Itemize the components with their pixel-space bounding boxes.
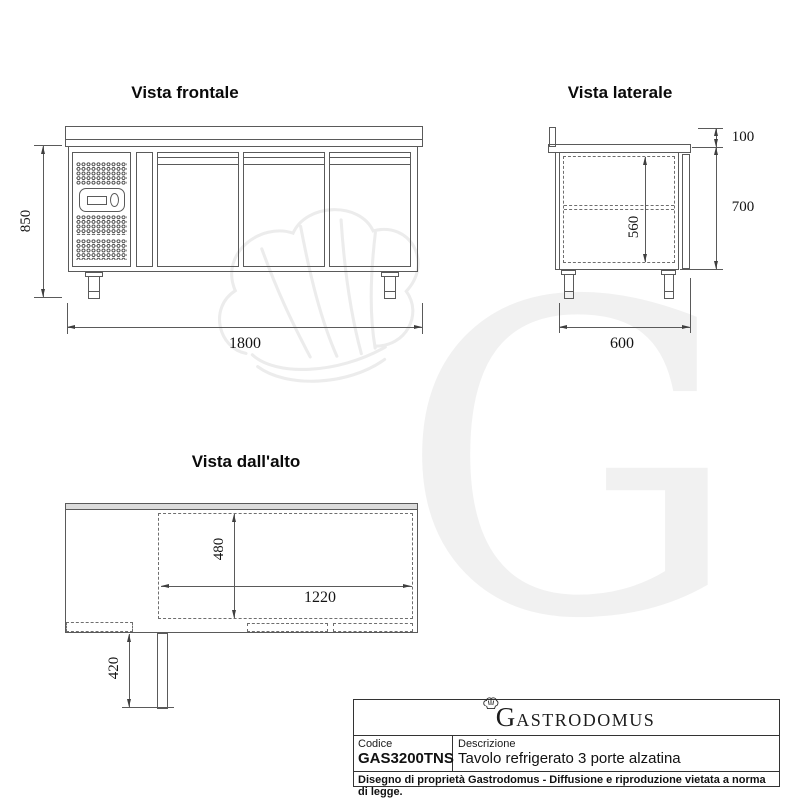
descrizione-value: Tavolo refrigerato 3 porte alzatina [458, 750, 681, 767]
dim-arrow [127, 634, 131, 642]
foot-leg [384, 276, 396, 299]
door-1 [157, 152, 239, 267]
side-view-title: Vista laterale [530, 83, 710, 103]
door-top-rail [158, 164, 238, 165]
technical-drawing-sheet: G Vista frontale 850 [0, 0, 800, 800]
front-worktop [65, 126, 423, 147]
side-backsplash-dim: 100 [725, 129, 761, 145]
dim-arrow [67, 325, 75, 329]
dim-arrow [714, 139, 718, 147]
door-top-rail [330, 157, 410, 158]
foot-adjuster-line [665, 291, 673, 292]
dim-arrow [559, 325, 567, 329]
dim-arrow [41, 146, 45, 154]
top-compressor-dashed [66, 622, 133, 632]
filler-panel [136, 152, 153, 267]
door-3 [329, 152, 411, 267]
dim-line [234, 514, 235, 618]
door-top-rail [244, 157, 324, 158]
foot-leg [88, 276, 100, 299]
title-block-divider [353, 735, 780, 736]
shelf-dashed-line [564, 209, 674, 210]
title-block-footer: Disegno di proprietà Gastrodomus - Diffu… [358, 774, 778, 798]
front-worktop-edge-line [66, 139, 422, 140]
extension-line [422, 303, 423, 334]
drawing-layer: Vista frontale 850 1800 [0, 0, 800, 800]
top-interior-dashed [158, 513, 413, 619]
top-view-title: Vista dall'alto [156, 452, 336, 472]
dim-arrow [403, 584, 411, 588]
tick-line [34, 145, 62, 146]
top-interior-width-dim: 1220 [290, 590, 350, 606]
door-top-rail [158, 157, 238, 158]
dim-arrow [161, 584, 169, 588]
title-block-divider [353, 771, 780, 772]
front-height-dim: 850 [18, 201, 34, 241]
foot-leg [564, 274, 574, 299]
front-view-title: Vista frontale [95, 83, 275, 103]
dim-line [43, 146, 44, 297]
control-knob [110, 193, 119, 207]
door-top-rail [244, 164, 324, 165]
top-interior-depth-dim: 480 [211, 529, 227, 569]
dim-arrow [232, 514, 236, 522]
dim-arrow [127, 699, 131, 707]
side-depth-dim: 600 [592, 336, 652, 352]
dim-line [716, 147, 717, 269]
side-height-dim: 700 [725, 199, 761, 215]
ventilation-grille-top [76, 162, 127, 185]
foot-adjuster-line [565, 291, 573, 292]
dim-line [161, 586, 412, 587]
codice-value: GAS3200TNS [358, 750, 454, 767]
dim-line [67, 327, 423, 328]
door-top-rail [330, 164, 410, 165]
chef-hat-icon [482, 697, 500, 713]
tick-line [680, 269, 723, 270]
logo-text: ASTRODOMUS [516, 710, 655, 730]
gastrodomus-logo: GASTRODOMUS [353, 702, 780, 734]
dim-arrow [682, 325, 690, 329]
dim-arrow [714, 261, 718, 269]
control-display [87, 196, 107, 205]
dim-arrow [232, 610, 236, 618]
dim-arrow [643, 254, 647, 262]
top-door-dashed [247, 623, 328, 632]
side-inner-wall [559, 152, 560, 270]
descrizione-label: Descrizione [458, 738, 515, 750]
shelf-dashed-line [564, 205, 674, 206]
foot-adjuster-line [385, 291, 395, 292]
dim-arrow [41, 289, 45, 297]
front-width-dim: 1800 [215, 336, 275, 352]
open-door [157, 633, 168, 709]
door-2 [243, 152, 325, 267]
dim-line [559, 327, 691, 328]
side-door-panel [682, 154, 690, 269]
tick-line [34, 297, 62, 298]
codice-label: Codice [358, 738, 392, 750]
foot-adjuster-line [89, 291, 99, 292]
foot-leg [664, 274, 674, 299]
top-door-dashed [333, 623, 413, 632]
dim-arrow [714, 147, 718, 155]
dim-line [645, 157, 646, 262]
tick-line [122, 707, 174, 708]
dim-arrow [643, 157, 647, 165]
dim-arrow [414, 325, 422, 329]
dim-arrow [714, 128, 718, 136]
extension-line [67, 303, 68, 334]
top-open-door-dim: 420 [106, 648, 122, 688]
tick-line [692, 147, 723, 148]
tick-line [698, 128, 723, 129]
extension-line [690, 278, 691, 333]
ventilation-grille-middle [76, 215, 127, 235]
dim-line [129, 634, 130, 707]
ventilation-grille-bottom [76, 239, 127, 260]
side-interior-dim: 560 [626, 207, 642, 247]
